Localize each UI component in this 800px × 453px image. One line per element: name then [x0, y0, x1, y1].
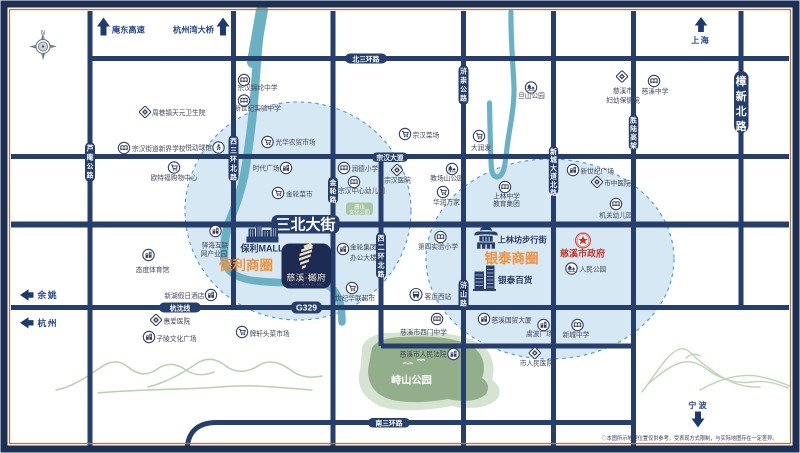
svg-text:宁波: 宁波 [688, 400, 708, 410]
svg-text:宗汉菜场: 宗汉菜场 [413, 130, 440, 139]
svg-text:路: 路 [87, 171, 94, 180]
svg-text:庵东高速: 庵东高速 [112, 25, 146, 35]
svg-text:保利商圈: 保利商圈 [218, 257, 273, 273]
svg-text:上林坊步行街: 上林坊步行街 [498, 235, 548, 245]
svg-text:路: 路 [460, 299, 467, 308]
svg-text:二: 二 [378, 244, 385, 252]
svg-text:高: 高 [630, 133, 637, 142]
svg-text:三北大街: 三北大街 [275, 216, 335, 234]
svg-text:环: 环 [230, 156, 237, 164]
svg-text:芦: 芦 [87, 144, 94, 153]
svg-text:大润发: 大润发 [471, 143, 491, 152]
svg-text:新: 新 [736, 89, 747, 103]
svg-text:慈溪国贸大厦: 慈溪国贸大厦 [492, 315, 532, 324]
svg-text:润德小学: 润德小学 [352, 164, 379, 173]
svg-text:惠爱医院: 惠爱医院 [164, 317, 191, 326]
svg-text:妇幼保健院: 妇幼保健院 [606, 95, 640, 104]
svg-text:北: 北 [230, 164, 237, 173]
svg-text:驿海互联: 驿海互联 [202, 240, 229, 249]
svg-text:世纪华联超市: 世纪华联超市 [335, 293, 375, 302]
svg-text:慈溪市人民法院: 慈溪市人民法院 [400, 350, 447, 359]
svg-text:杭沈线: 杭沈线 [170, 303, 191, 312]
svg-text:余姚: 余姚 [37, 289, 59, 300]
svg-text:杭州: 杭州 [38, 317, 59, 328]
svg-text:宗汉锦纶中学: 宗汉锦纶中学 [237, 83, 277, 92]
svg-text:办公大楼: 办公大楼 [350, 253, 377, 262]
svg-text:北: 北 [550, 180, 557, 189]
svg-text:架: 架 [629, 141, 637, 150]
svg-text:杭州湾大桥: 杭州湾大桥 [173, 25, 215, 35]
svg-text:客运西站: 客运西站 [425, 292, 452, 301]
svg-text:新世纪广场: 新世纪广场 [581, 167, 615, 176]
svg-text:庵: 庵 [87, 153, 94, 162]
svg-text:环: 环 [378, 253, 385, 261]
svg-text:子陵文化广场: 子陵文化广场 [157, 334, 197, 343]
svg-text:CIXI MANSION: CIXI MANSION [290, 283, 322, 287]
svg-text:金: 金 [329, 178, 337, 187]
svg-text:北: 北 [378, 261, 385, 270]
svg-text:宗汉街道新界学校: 宗汉街道新界学校 [132, 144, 186, 153]
svg-text:宗汉中心幼儿园: 宗汉中心幼儿园 [338, 186, 385, 195]
svg-text:山: 山 [460, 290, 467, 299]
svg-text:市人民医院: 市人民医院 [520, 358, 554, 367]
svg-text:保利MALL: 保利MALL [240, 243, 284, 254]
svg-text:崇: 崇 [460, 76, 467, 85]
svg-text:路: 路 [460, 94, 467, 103]
svg-text:新世纪实验中学: 新世纪实验中学 [234, 103, 281, 112]
svg-text:路: 路 [330, 195, 337, 204]
svg-text:慈溪市西门中学: 慈溪市西门中学 [400, 327, 447, 336]
svg-text:第四实验小学: 第四实验小学 [418, 242, 458, 251]
svg-text:路: 路 [736, 119, 747, 133]
svg-text:道: 道 [550, 172, 557, 181]
svg-text:北三环路: 北三环路 [352, 54, 379, 63]
svg-text:◇本图所示地理位置仅供参考，受表现方式限制，与实际地图存在一: ◇本图所示地理位置仅供参考，受表现方式限制，与实际地图存在一定差异。 [602, 434, 778, 442]
svg-text:态度体育馆: 态度体育馆 [136, 265, 170, 274]
svg-text:金轮菜市: 金轮菜市 [286, 190, 313, 199]
svg-text:慈溪·樾府: 慈溪·樾府 [286, 271, 326, 282]
svg-text:市中医院: 市中医院 [604, 179, 631, 188]
svg-text:上海: 上海 [691, 35, 710, 45]
svg-text:胜: 胜 [630, 116, 637, 125]
svg-text:新湖假日酒店: 新湖假日酒店 [164, 291, 204, 300]
svg-text:周巷镇天元卫生院: 周巷镇天元卫生院 [152, 108, 206, 117]
svg-text:机关幼儿园: 机关幼儿园 [599, 210, 633, 219]
svg-text:路: 路 [230, 173, 237, 182]
svg-text:文化公园: 文化公园 [349, 208, 370, 216]
svg-text:宗汉医院: 宗汉医院 [384, 175, 411, 184]
svg-text:西: 西 [230, 138, 237, 146]
svg-text:新城中学: 新城中学 [563, 330, 590, 339]
svg-text:教育集团: 教育集团 [493, 199, 520, 208]
svg-text:银泰百货: 银泰百货 [498, 274, 533, 285]
svg-text:网产业园: 网产业园 [201, 249, 228, 258]
svg-text:公: 公 [460, 86, 467, 94]
svg-text:城: 城 [550, 155, 557, 164]
svg-text:欧特福购物中心: 欧特福购物中心 [151, 173, 198, 182]
svg-text:慈溪市: 慈溪市 [613, 86, 633, 95]
svg-text:牌轩头菜市场: 牌轩头菜市场 [250, 329, 290, 338]
svg-text:路: 路 [378, 270, 385, 279]
svg-text:路: 路 [550, 188, 557, 197]
svg-text:时代广场: 时代广场 [253, 164, 280, 173]
svg-text:慈溪市政府: 慈溪市政府 [560, 247, 605, 258]
svg-text:浒: 浒 [460, 67, 467, 76]
svg-text:上林中学: 上林中学 [493, 191, 520, 200]
svg-text:宗汉大道: 宗汉大道 [376, 153, 403, 162]
svg-text:南三环路: 南三环路 [375, 419, 402, 428]
svg-text:银泰商圈: 银泰商圈 [485, 250, 539, 266]
svg-text:华润万家: 华润万家 [433, 198, 460, 207]
svg-text:三: 三 [230, 147, 237, 155]
svg-text:新: 新 [550, 147, 557, 156]
svg-text:轮: 轮 [330, 186, 337, 195]
svg-text:西: 西 [378, 235, 385, 243]
svg-text:陆: 陆 [630, 124, 637, 133]
svg-text:悦动球馆: 悦动球馆 [185, 143, 212, 152]
svg-text:樟: 樟 [736, 74, 747, 88]
svg-text:浒: 浒 [460, 281, 467, 290]
svg-text:G329: G329 [296, 303, 317, 313]
svg-text:慈溪中学: 慈溪中学 [642, 86, 669, 95]
svg-text:北: 北 [736, 104, 747, 118]
svg-text:峙山公园: 峙山公园 [391, 374, 432, 387]
svg-text:旦山公园: 旦山公园 [518, 91, 545, 100]
svg-text:人民公园: 人民公园 [580, 266, 607, 274]
svg-text:公: 公 [87, 163, 94, 171]
svg-text:光华农贸市场: 光华农贸市场 [276, 138, 316, 147]
svg-text:虞波广场: 虞波广场 [526, 329, 553, 338]
svg-text:大: 大 [550, 163, 557, 172]
svg-text:教场山公园: 教场山公园 [430, 174, 464, 183]
svg-text:金轮集团: 金轮集团 [350, 242, 377, 251]
